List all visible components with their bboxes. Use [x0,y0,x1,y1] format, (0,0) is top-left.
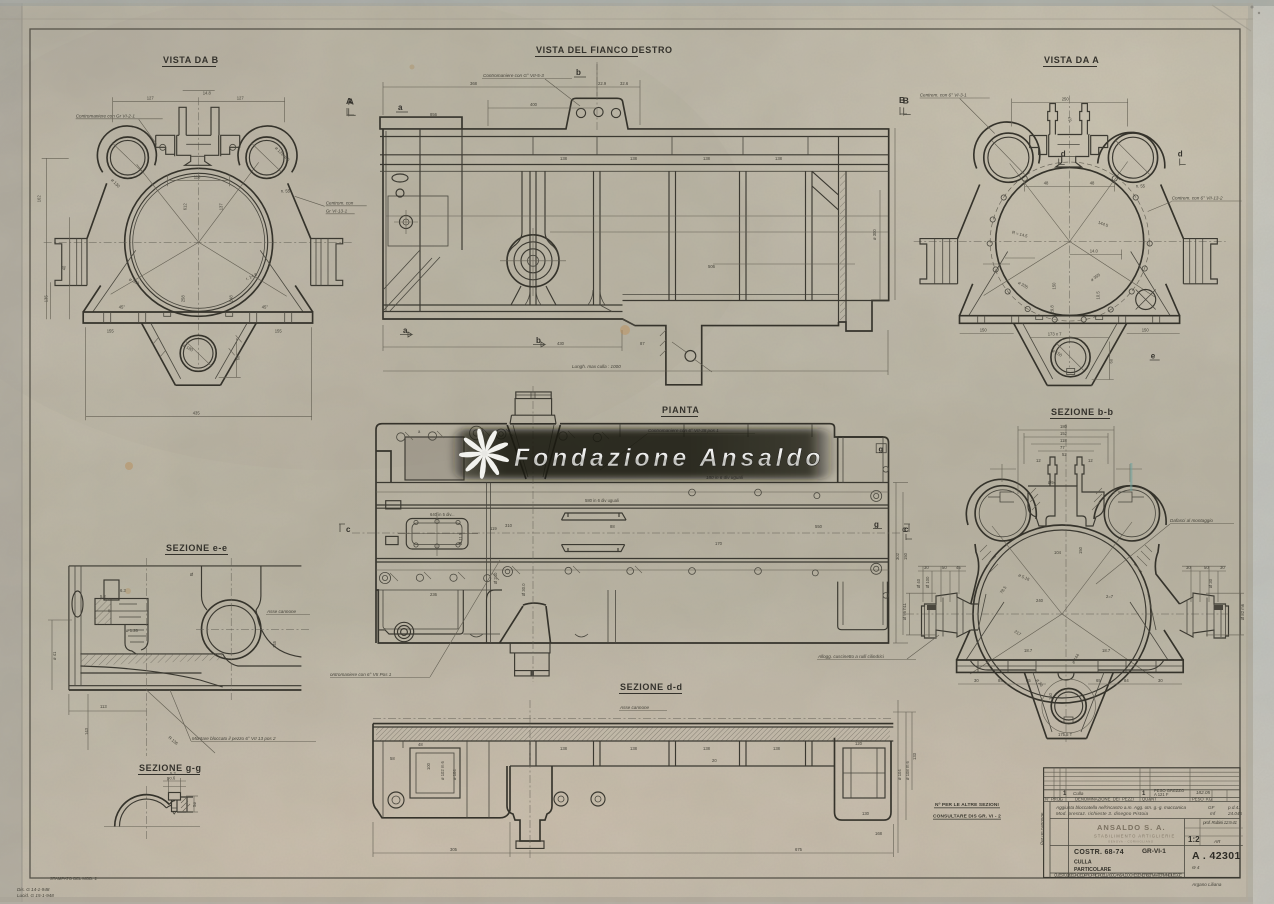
svg-text:Contromaniere con Gr VI-2-1: Contromaniere con Gr VI-2-1 [76,113,136,118]
svg-text:QUESTO DISEGNO E DI PROPRIETA: QUESTO DISEGNO E DI PROPRIETA DELLA SOC … [1054,873,1182,878]
svg-text:DENOMINAZIONE DEI PEZZI: DENOMINAZIONE DEI PEZZI [1075,797,1134,802]
svg-text:30: 30 [1158,678,1163,683]
svg-text:77: 77 [1060,445,1065,450]
svg-text:g: g [874,520,879,529]
svg-text:a: a [403,326,408,335]
svg-text:n. 55: n. 55 [1136,184,1146,189]
svg-text:45: 45 [956,565,961,570]
svg-text:137: 137 [219,203,224,211]
svg-text:168: 168 [875,831,883,836]
svg-text:130: 130 [862,811,870,816]
svg-text:52: 52 [1062,452,1067,457]
svg-text:CONSULTARE DIS GR. VI - 2: CONSULTARE DIS GR. VI - 2 [933,814,1001,820]
svg-text:58: 58 [390,756,395,761]
svg-text:120: 120 [855,741,863,746]
svg-text:150: 150 [980,328,988,333]
svg-text:A . 42301: A . 42301 [1192,850,1241,862]
svg-text:310: 310 [505,523,513,528]
svg-text:119: 119 [490,526,497,531]
svg-text:Ø 30: Ø 30 [1208,578,1213,588]
svg-text:GENOVA - CORNIGLIANO: GENOVA - CORNIGLIANO [1108,840,1154,844]
svg-text:Ø 82 m6: Ø 82 m6 [1240,603,1245,620]
svg-text:580 in 6 div uguali: 580 in 6 div uguali [585,498,619,503]
svg-text:ø 1.26: ø 1.26 [126,628,139,633]
svg-text:138: 138 [630,156,638,161]
svg-text:Nº PER LE ALTRE SEZIONI: Nº PER LE ALTRE SEZIONI [935,802,999,808]
svg-text:AR: AR [1213,839,1221,844]
svg-text:Lungh. max culla : 1000: Lungh. max culla : 1000 [572,364,621,369]
svg-text:Culla: Culla [1073,791,1084,796]
svg-text:Montare bloccato il pezzo 6° V: Montare bloccato il pezzo 6° VII 13 pos … [192,736,276,741]
svg-text:148: 148 [229,295,234,303]
svg-text:Asse cannone: Asse cannone [266,609,297,614]
svg-text:N° PROG: N° PROG [1045,797,1063,802]
svg-text:127: 127 [147,95,155,100]
svg-text:400: 400 [530,102,538,107]
svg-text:12: 12 [1036,458,1041,463]
svg-text:5.2: 5.2 [170,771,176,776]
svg-text:30: 30 [924,565,929,570]
svg-text:prof. Rubini 12.9.41: prof. Rubini 12.9.41 [1202,820,1237,825]
svg-text:170: 170 [715,541,723,546]
svg-text:50: 50 [942,565,947,570]
svg-text:Allogg. cuscinetto a rulli cil: Allogg. cuscinetto a rulli cilindrici [817,654,885,659]
svg-text:1:2: 1:2 [1188,835,1200,844]
svg-text:STABILIMENTO ARTIGLIERIE: STABILIMENTO ARTIGLIERIE [1094,834,1175,839]
svg-text:ø 104: ø 104 [897,769,902,780]
svg-text:Centrem. con 6° VI-3-1: Centrem. con 6° VI-3-1 [920,93,967,98]
svg-text:182.05: 182.05 [1196,790,1210,795]
svg-text:VISTA DA A: VISTA DA A [1044,55,1099,65]
svg-text:24.046: 24.046 [1227,811,1242,816]
svg-text:Ø 30.0: Ø 30.0 [521,583,526,596]
svg-text:b: b [576,68,581,77]
svg-text:133: 133 [912,752,917,760]
svg-text:c: c [346,525,351,534]
svg-text:ø 41: ø 41 [52,651,57,660]
svg-text:250: 250 [1062,97,1070,102]
svg-text:SEZIONE e-e: SEZIONE e-e [166,543,228,553]
svg-text:Mod. prestaz. richieste 3. dis: Mod. prestaz. richieste 3. disegno Pisto… [1056,811,1148,816]
svg-text:18.7: 18.7 [1024,648,1033,653]
svg-text:PIANTA: PIANTA [662,405,700,415]
svg-text:640 in 5 div...: 640 in 5 div... [430,512,455,517]
svg-text:ø 108 m 6: ø 108 m 6 [905,760,910,780]
svg-text:100: 100 [426,762,431,770]
svg-text:VISTA DA B: VISTA DA B [163,55,219,65]
svg-text:a: a [398,103,403,112]
svg-text:22.9: 22.9 [598,81,607,86]
svg-text:Ø 11.5: Ø 11.5 [458,532,463,545]
svg-text:Centrom. con: Centrom. con [326,200,354,205]
svg-text:435: 435 [193,410,201,415]
svg-text:50: 50 [1204,565,1209,570]
svg-text:Dis. G 14-1-948: Dis. G 14-1-948 [17,887,50,892]
svg-text:180: 180 [1060,424,1068,429]
svg-text:CULLA: CULLA [1074,860,1092,866]
svg-text:155: 155 [275,328,283,333]
svg-text:SEZIONE b-b: SEZIONE b-b [1051,407,1114,417]
svg-text:258: 258 [181,295,186,303]
svg-text:65: 65 [1096,678,1101,683]
svg-text:ø 300: ø 300 [872,229,877,240]
svg-text:138: 138 [775,156,783,161]
svg-text:150: 150 [903,552,908,560]
svg-text:302: 302 [895,552,900,560]
svg-text:GR-VI-1: GR-VI-1 [1142,848,1166,855]
svg-text:506: 506 [708,264,716,269]
svg-text:88: 88 [610,524,615,529]
svg-text:Per un cannone: Per un cannone [1040,812,1045,845]
svg-text:152: 152 [1060,431,1068,436]
svg-text:150: 150 [1052,282,1057,290]
svg-text:ø 104: ø 104 [452,769,457,780]
svg-text:d: d [1178,150,1183,159]
svg-text:SEZIONE d-d: SEZIONE d-d [620,682,683,692]
svg-text:173 x 7: 173 x 7 [1048,332,1062,337]
svg-text:60: 60 [1109,358,1114,363]
svg-text:138: 138 [703,156,711,161]
svg-text:30: 30 [1220,565,1225,570]
svg-text:b: b [536,336,541,345]
svg-text:162: 162 [37,195,42,203]
svg-text:30: 30 [974,678,979,683]
svg-text:ontromaniere con 6° VII Pos 1: ontromaniere con 6° VII Pos 1 [330,672,392,677]
svg-text:175.5 T: 175.5 T [1058,732,1073,737]
svg-text:18.7: 18.7 [1102,648,1111,653]
svg-text:n. 55: n. 55 [281,188,291,193]
svg-text:Contrem. con 6° VII-13-2: Contrem. con 6° VII-13-2 [1172,196,1223,201]
svg-text:Contromaniere con G° VII-5-3: Contromaniere con G° VII-5-3 [483,73,544,78]
svg-text:138: 138 [630,746,638,751]
svg-text:Gr VI-13-1: Gr VI-13-1 [326,208,348,213]
svg-text:118: 118 [1060,438,1067,443]
svg-text:612: 612 [183,203,188,211]
svg-text:145: 145 [272,640,277,648]
svg-text:ANSALDO S. A.: ANSALDO S. A. [1097,823,1166,832]
svg-text:135: 135 [44,295,49,303]
svg-text:127: 127 [237,95,245,100]
svg-text:Argano Liliana: Argano Liliana [1191,882,1222,887]
svg-text:550: 550 [815,524,823,529]
svg-text:32.6: 32.6 [620,81,629,86]
svg-text:138: 138 [560,746,568,751]
svg-text:856: 856 [430,112,438,117]
svg-text:Ø 40: Ø 40 [916,578,921,588]
svg-text:14.0: 14.0 [1090,249,1099,254]
svg-text:84: 84 [1124,678,1129,683]
svg-text:p.d.41: p.d.41 [1227,805,1241,810]
svg-text:138: 138 [773,746,781,751]
svg-text:113: 113 [100,704,107,709]
svg-text:QUANT: QUANT [1142,797,1157,802]
svg-text:STAMPATO DEL MOD. 2: STAMPATO DEL MOD. 2 [50,876,97,881]
svg-text:B: B [903,96,909,106]
svg-text:ø 102 m 6: ø 102 m 6 [440,760,445,780]
svg-text:mf: mf [1210,811,1216,816]
svg-text:Ø 100: Ø 100 [925,576,930,588]
svg-text:155: 155 [107,328,115,333]
svg-text:118: 118 [194,174,201,179]
svg-text:Asse cannone: Asse cannone [619,705,650,710]
svg-text:Dafasci al montaggio: Dafasci al montaggio [1170,518,1213,523]
svg-text:150: 150 [1078,546,1083,554]
svg-text:104: 104 [1054,550,1062,555]
svg-text:po.6: po.6 [167,776,176,781]
svg-text:e: e [1151,352,1156,361]
svg-text:60: 60 [236,355,241,360]
svg-text:Lucid. G 15-1-948: Lucid. G 15-1-948 [17,893,54,898]
svg-text:368: 368 [470,81,478,86]
svg-text:Aggiunta bloccatella nell'inca: Aggiunta bloccatella nell'incastro a.m. … [1055,805,1186,810]
svg-text:Ø94: Ø94 [1048,480,1057,485]
svg-text:45°: 45° [262,304,269,309]
svg-text:12: 12 [1088,458,1093,463]
svg-text:d: d [1061,150,1066,159]
svg-text:240: 240 [1036,598,1044,603]
svg-text:45°: 45° [119,304,126,309]
svg-text:10.5: 10.5 [1096,291,1101,300]
svg-text:150: 150 [1142,328,1150,333]
svg-text:20: 20 [712,758,717,763]
svg-text:VISTA DEL FIANCO DESTRO: VISTA DEL FIANCO DESTRO [536,45,673,55]
svg-text:48: 48 [1044,181,1049,186]
svg-text:430: 430 [557,341,565,346]
svg-text:138: 138 [703,746,711,751]
svg-text:65: 65 [1026,678,1031,683]
svg-text:30: 30 [1186,565,1191,570]
svg-text:14.8: 14.8 [203,90,212,95]
svg-text:305: 305 [450,847,458,852]
svg-text:A: A [346,96,352,106]
svg-text:138: 138 [560,156,568,161]
svg-text:84: 84 [998,678,1003,683]
svg-text:236: 236 [430,592,438,597]
svg-text:COSTR. 68-74: COSTR. 68-74 [1074,849,1124,856]
svg-text:48: 48 [1090,181,1095,186]
svg-text:48: 48 [418,742,423,747]
svg-text:Fondazione Ansaldo: Fondazione Ansaldo [514,444,822,472]
svg-text:29.8: 29.8 [1050,305,1055,314]
svg-text:PESO KG: PESO KG [1192,797,1212,802]
svg-text:5ø: 5ø [192,802,197,807]
svg-text:2=7: 2=7 [1106,594,1114,599]
svg-text:5.2: 5.2 [100,594,106,599]
svg-text:40: 40 [62,265,67,270]
svg-text:150: 150 [1048,692,1053,700]
svg-text:87: 87 [640,341,645,346]
svg-text:g: g [879,445,884,454]
svg-text:67: 67 [1068,116,1073,121]
svg-text:675: 675 [795,847,803,852]
svg-text:Ɵ 4: Ɵ 4 [1192,865,1200,870]
